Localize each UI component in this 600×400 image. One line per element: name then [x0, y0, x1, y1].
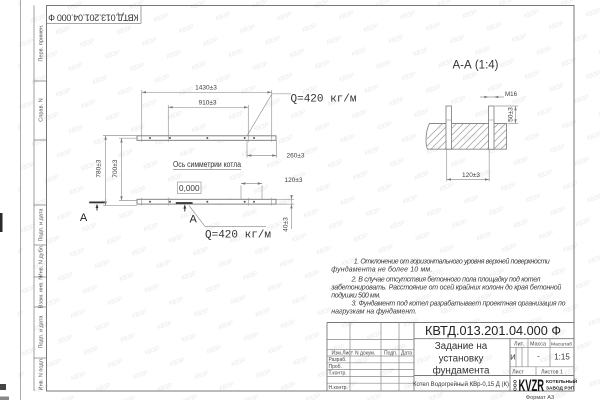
svg-text:Н.контр.: Н.контр.: [329, 385, 348, 391]
svg-text:И: И: [510, 353, 515, 362]
svg-text:780±3: 780±3: [96, 159, 103, 177]
svg-text:Масштаб: Масштаб: [551, 341, 572, 347]
svg-text:Задание на: Задание на: [435, 341, 488, 352]
svg-text:910±3: 910±3: [198, 100, 216, 107]
svg-text:Листов 1: Листов 1: [541, 370, 563, 376]
svg-text:Формат А3: Формат А3: [526, 395, 554, 400]
svg-text:M16: M16: [505, 91, 518, 98]
svg-text:Изм.Лист: Изм.Лист: [332, 350, 354, 356]
svg-text:Дата: Дата: [401, 350, 412, 356]
svg-text:3. Фундамент под котел разраба: 3. Фундамент под котел разрабатывает про…: [352, 300, 566, 308]
svg-text:700±3: 700±3: [112, 159, 119, 177]
svg-text:фундамента: фундамента: [433, 365, 490, 376]
svg-text:Разраб.: Разраб.: [329, 357, 347, 363]
svg-text:Справ. N: Справ. N: [39, 98, 45, 121]
svg-text:260±3: 260±3: [287, 153, 305, 160]
svg-text:нагрузкам на фундамент.: нагрузкам на фундамент.: [331, 308, 417, 316]
svg-text:1. Отклонение от горизонтально: 1. Отклонение от горизонтального уровня …: [354, 257, 550, 265]
svg-text:Проб.: Проб.: [329, 364, 342, 370]
svg-text:ЗАВОД РЭП: ЗАВОД РЭП: [546, 386, 575, 392]
svg-text:забетонировать. Расстояние от: забетонировать. Расстояние от осей крайн…: [330, 283, 561, 291]
svg-text:Подп. и дата: Подп. и дата: [39, 208, 45, 242]
svg-text:Инв. N дубл.: Инв. N дубл.: [39, 244, 45, 277]
svg-text:-: -: [537, 352, 540, 361]
svg-text:фундамента не более 10 мм.: фундамента не более 10 мм.: [331, 265, 432, 273]
svg-text:Взам. инв. N: Взам. инв. N: [39, 276, 45, 309]
svg-text:Лист: Лист: [512, 370, 524, 376]
svg-text:40±3: 40±3: [283, 217, 290, 232]
svg-text:KVZR: KVZR: [519, 377, 545, 395]
svg-text:КВТД.013.201.04.000 Ф: КВТД.013.201.04.000 Ф: [48, 13, 138, 23]
svg-text:Q=420 кг/м: Q=420 кг/м: [291, 93, 357, 105]
svg-text:Масса: Масса: [530, 341, 546, 347]
svg-text:подушки 500 мм.: подушки 500 мм.: [331, 292, 381, 300]
svg-text:А-А (1:4): А-А (1:4): [452, 60, 498, 72]
svg-text:N докум.: N докум.: [355, 350, 375, 356]
svg-text:А: А: [190, 213, 198, 225]
svg-text:120±3: 120±3: [462, 172, 480, 179]
svg-text:Лит.: Лит.: [514, 341, 524, 347]
svg-text:2. В случае отсутствия бетонно: 2. В случае отсутствия бетонного пола пл…: [351, 275, 541, 283]
svg-text:А: А: [80, 212, 88, 224]
svg-text:120±3: 120±3: [285, 177, 303, 184]
svg-text:Ось симметрии котла: Ось симметрии котла: [173, 160, 241, 169]
svg-text:КВТД.013.201.04.000 Ф: КВТД.013.201.04.000 Ф: [425, 323, 561, 338]
svg-text:Подп.: Подп.: [384, 350, 397, 356]
svg-text:50±3: 50±3: [508, 107, 515, 122]
svg-text:Котел Водогрейный КВр-0,15 Д (: Котел Водогрейный КВр-0,15 Д (К): [413, 381, 509, 388]
svg-text:Т.контр.: Т.контр.: [329, 371, 347, 377]
svg-text:установку: установку: [439, 353, 484, 364]
svg-text:Инв. N подл.: Инв. N подл.: [39, 357, 45, 390]
svg-text:1430±3: 1430±3: [195, 85, 217, 92]
svg-text:1:15: 1:15: [554, 353, 570, 362]
svg-text:Подп. и дата: Подп. и дата: [39, 315, 45, 349]
svg-text:Q=420 кг/м: Q=420 кг/м: [205, 229, 271, 241]
svg-text:Перв. примен.: Перв. примен.: [39, 24, 45, 62]
svg-text:0,000: 0,000: [179, 184, 200, 193]
